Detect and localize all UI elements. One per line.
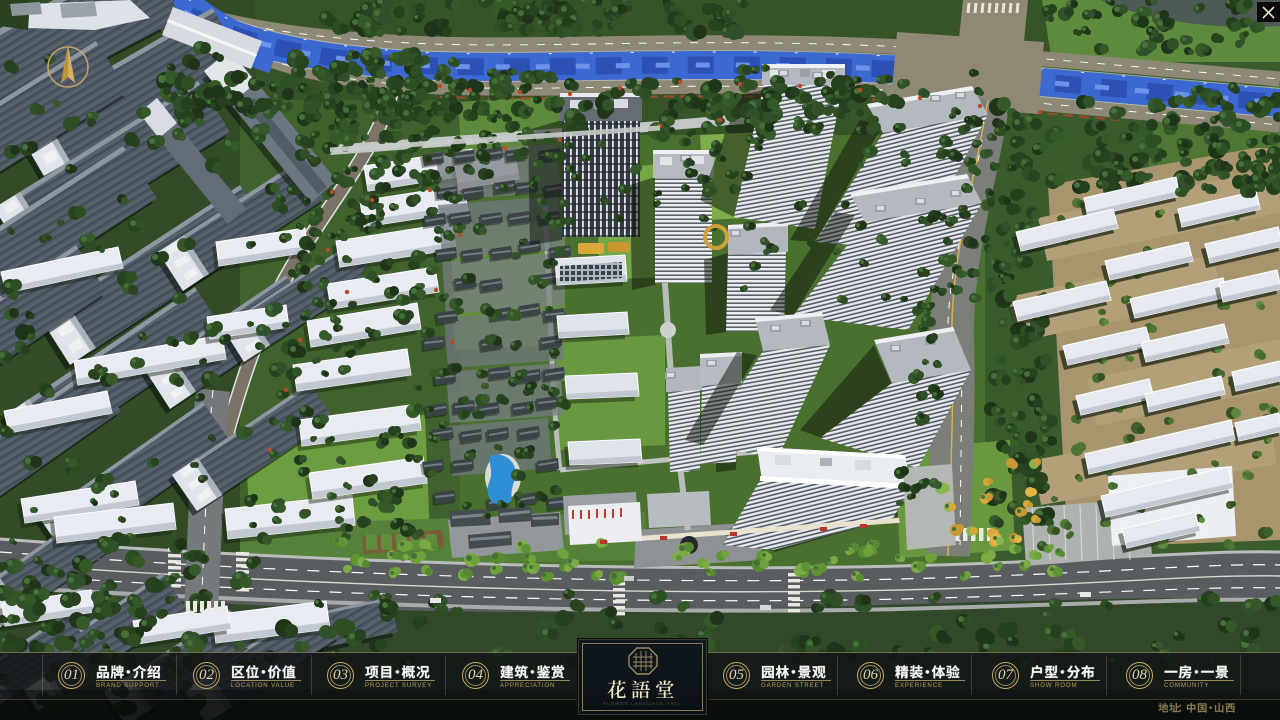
svg-text:FLOWER LANGUAGE HALL: FLOWER LANGUAGE HALL — [603, 701, 681, 706]
